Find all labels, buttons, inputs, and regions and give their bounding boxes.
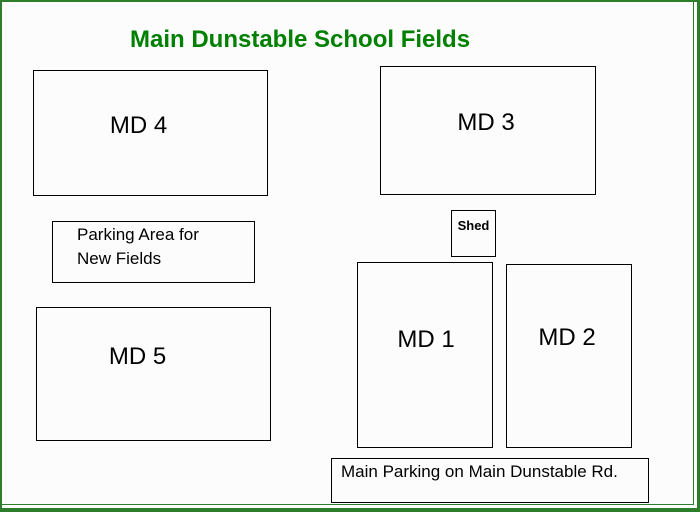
- field-label-md5: MD 5: [109, 343, 166, 371]
- field-label-md1: MD 1: [397, 326, 454, 354]
- field-label-md3: MD 3: [457, 109, 514, 137]
- parking-new-fields-line2: New Fields: [77, 247, 254, 271]
- shed-label: Shed: [458, 218, 490, 256]
- field-box-md3: MD 3: [380, 66, 596, 195]
- parking-area-new-fields-box: Parking Area for New Fields: [52, 221, 255, 283]
- parking-new-fields-line1: Parking Area for: [77, 223, 254, 247]
- field-box-md1: MD 1: [357, 262, 493, 448]
- field-box-md4: MD 4: [33, 70, 268, 196]
- school-fields-map: Main Dunstable School Fields MD 4 MD 3 P…: [0, 0, 700, 512]
- field-label-md2: MD 2: [538, 324, 595, 352]
- main-parking-label: Main Parking on Main Dunstable Rd.: [341, 460, 648, 484]
- field-box-md5: MD 5: [36, 307, 271, 441]
- map-title: Main Dunstable School Fields: [130, 27, 470, 53]
- main-parking-box: Main Parking on Main Dunstable Rd.: [331, 458, 649, 503]
- field-label-md4: MD 4: [110, 112, 167, 140]
- field-box-md2: MD 2: [506, 264, 632, 448]
- shed-box: Shed: [451, 210, 496, 257]
